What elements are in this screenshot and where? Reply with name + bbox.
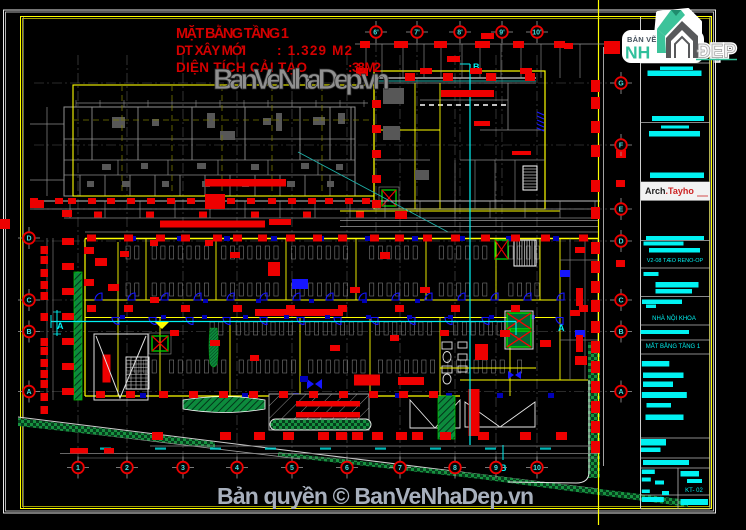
svg-text:DT XÂY MỚI: DT XÂY MỚI (176, 43, 246, 58)
svg-text:B: B (26, 329, 31, 336)
svg-text:B: B (618, 329, 623, 336)
svg-text:8': 8' (457, 30, 463, 37)
svg-text:7: 7 (398, 465, 402, 472)
svg-text:9': 9' (499, 30, 505, 37)
svg-text:C: C (618, 298, 623, 305)
svg-text:E: E (619, 207, 624, 214)
svg-text:F: F (619, 143, 624, 150)
svg-text:V2-08 TÆO RENO-OP: V2-08 TÆO RENO-OP (647, 258, 704, 264)
svg-text:6: 6 (345, 465, 349, 472)
svg-text:G: G (618, 81, 624, 88)
svg-text:NH: NH (625, 43, 650, 63)
svg-text:: 1.329 M2: : 1.329 M2 (277, 43, 352, 58)
svg-text:Bản quyền © BanVeNhaDep.vn: Bản quyền © BanVeNhaDep.vn (217, 483, 534, 509)
svg-text:KT- 02: KT- 02 (685, 488, 703, 494)
svg-text:MẶT BẰNG TẦNG 1: MẶT BẰNG TẦNG 1 (176, 24, 289, 42)
svg-text:9: 9 (494, 465, 498, 472)
svg-text:10': 10' (532, 30, 542, 37)
svg-text:3: 3 (181, 465, 185, 472)
svg-text:10: 10 (533, 465, 541, 472)
svg-text:A: A (618, 389, 623, 396)
svg-text:A: A (558, 323, 565, 333)
svg-text:D: D (26, 236, 31, 243)
svg-text:A: A (57, 321, 64, 331)
svg-text:7': 7' (414, 30, 420, 37)
svg-text:4: 4 (235, 465, 239, 472)
svg-text:NHÀ NỘI KHOA: NHÀ NỘI KHOA (652, 315, 696, 322)
svg-text:1: 1 (76, 465, 80, 472)
svg-text:2: 2 (125, 465, 129, 472)
svg-text:5: 5 (290, 465, 294, 472)
svg-text:BanVeNhaDep.vn: BanVeNhaDep.vn (213, 64, 390, 96)
svg-text:8: 8 (453, 465, 457, 472)
svg-text:Arch.Tayho: Arch.Tayho (645, 186, 694, 196)
svg-text:C: C (26, 298, 31, 305)
svg-text:A: A (26, 389, 31, 396)
svg-text:MẮT BẰNG TẦNG 1: MẮT BẰNG TẦNG 1 (646, 342, 701, 350)
svg-text:D: D (618, 239, 623, 246)
svg-text:6': 6' (373, 30, 379, 37)
